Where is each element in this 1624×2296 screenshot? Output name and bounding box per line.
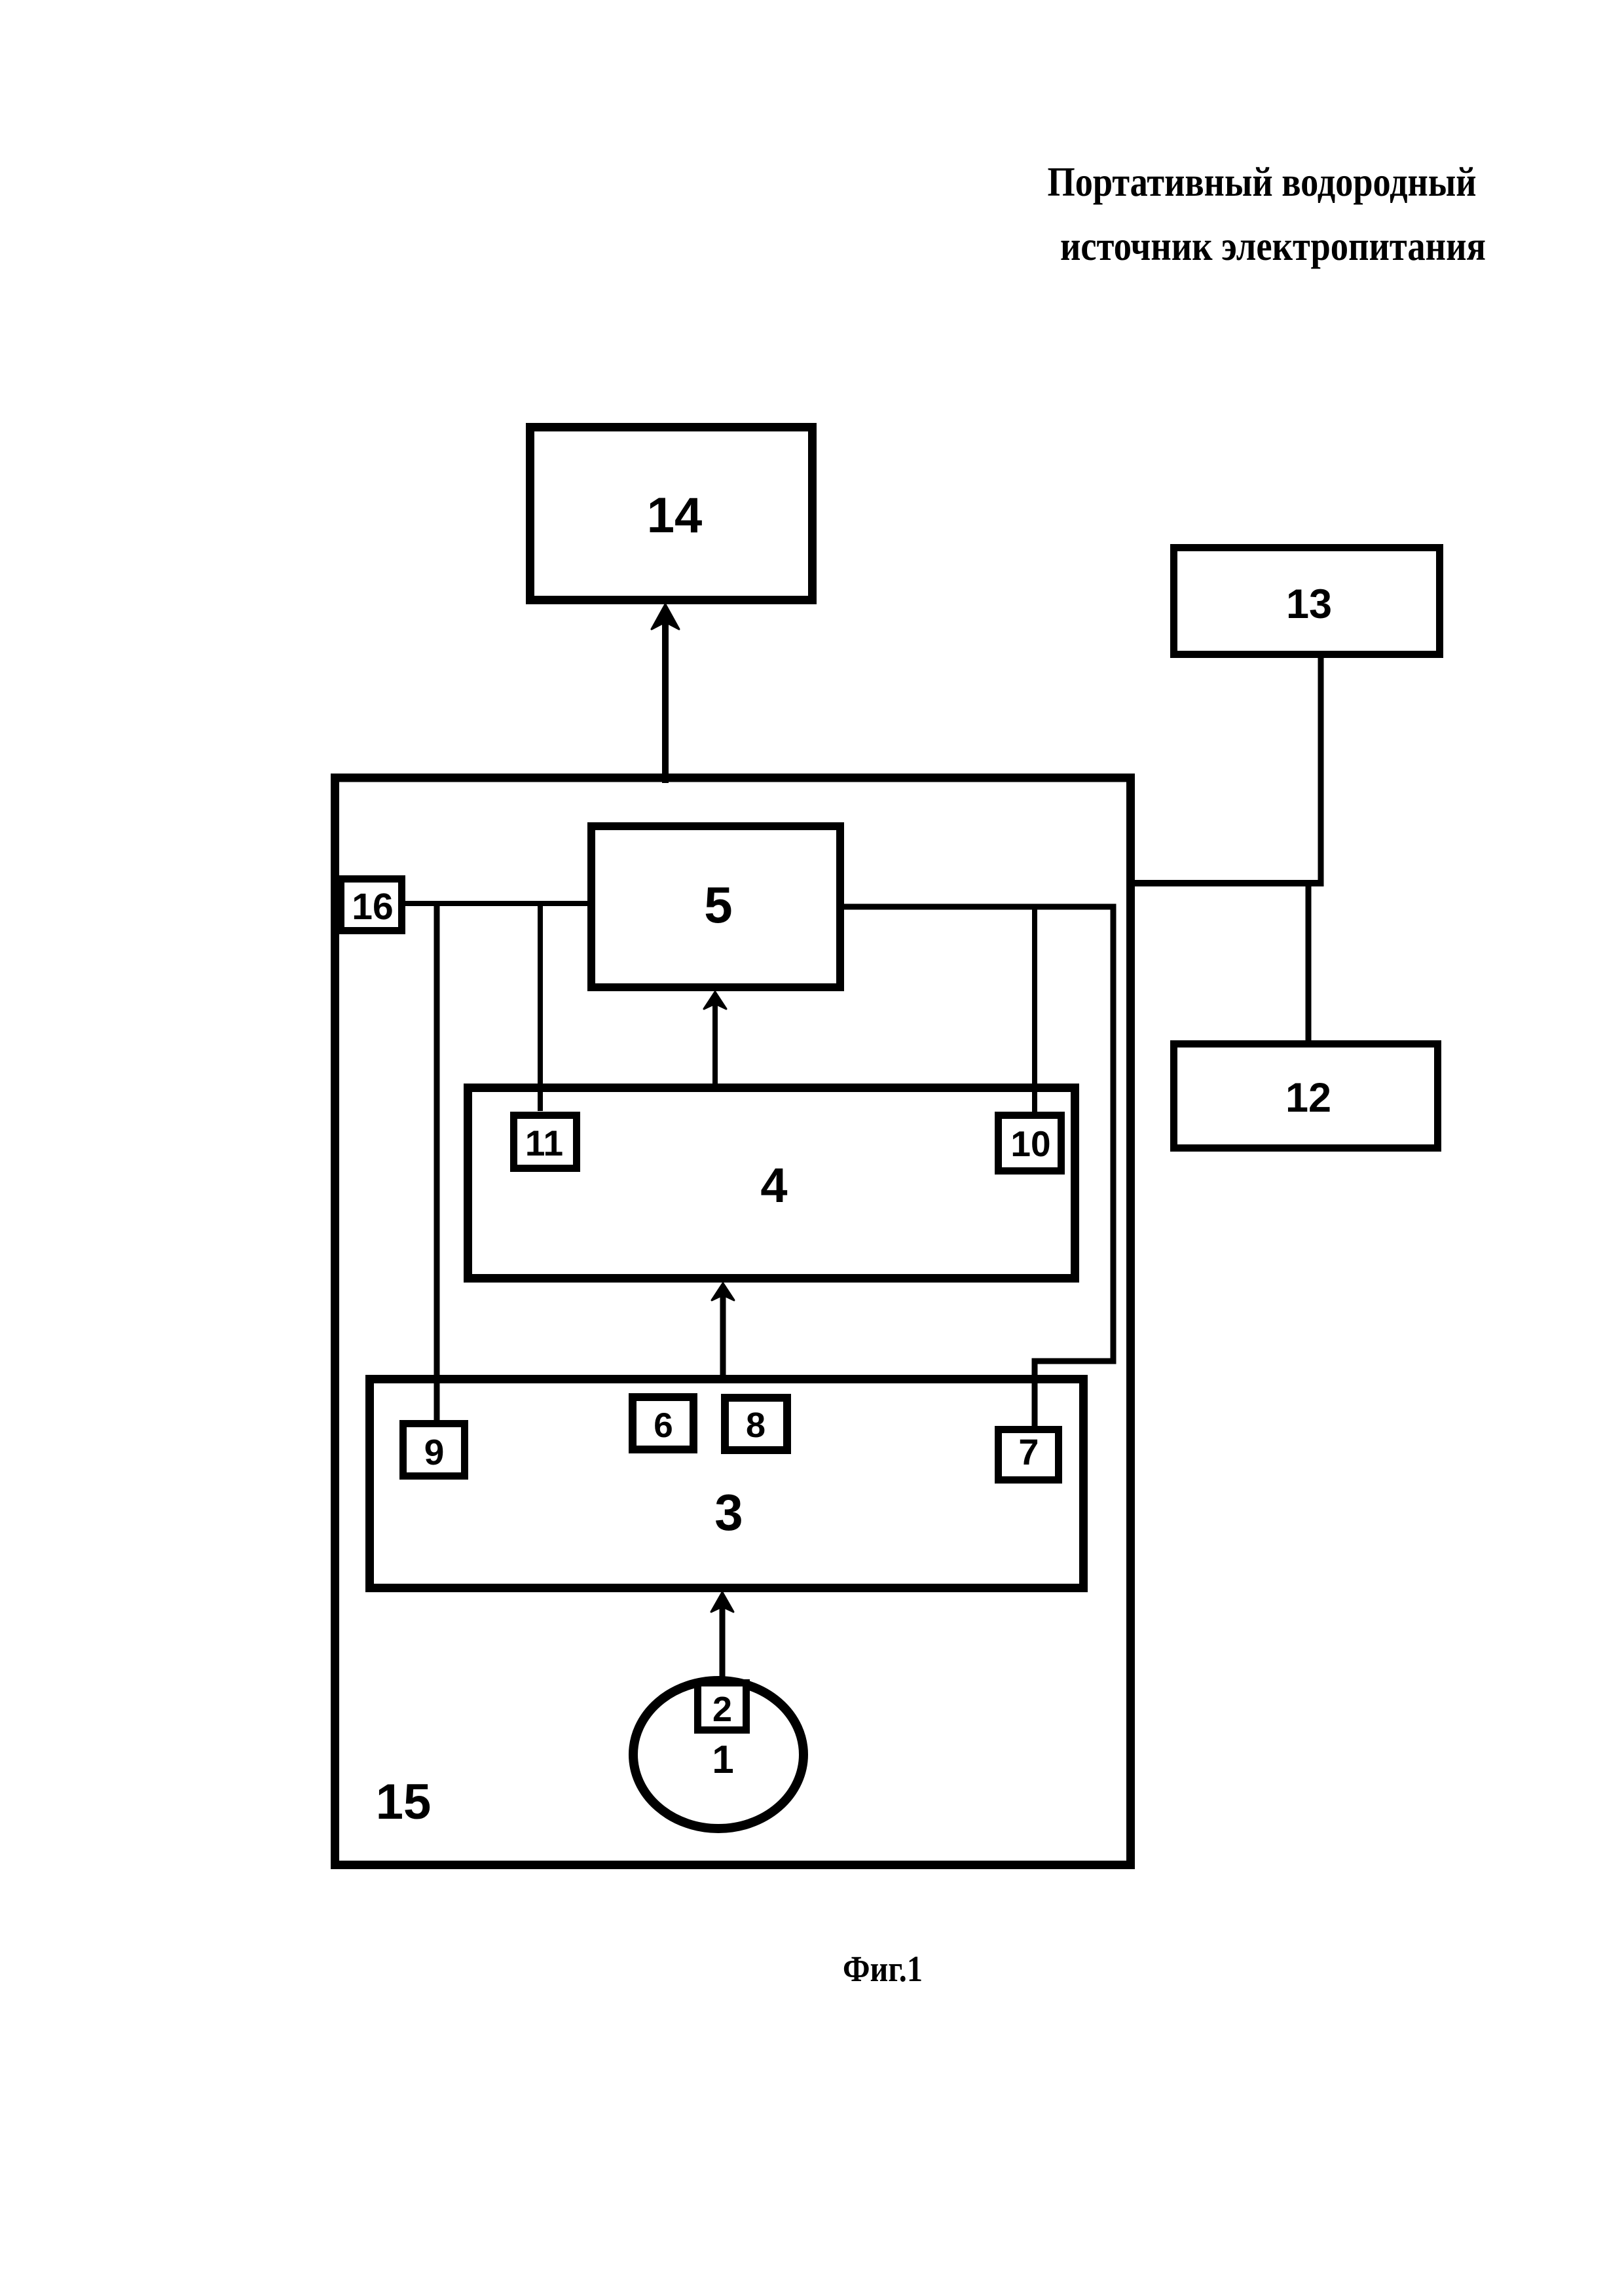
svg-text:11: 11 — [525, 1123, 563, 1163]
svg-text:7: 7 — [1018, 1431, 1039, 1472]
svg-text:9: 9 — [424, 1432, 445, 1472]
svg-text:Фиг.1: Фиг.1 — [843, 1949, 923, 1990]
svg-text:3: 3 — [714, 1484, 743, 1541]
svg-text:16: 16 — [352, 886, 393, 928]
svg-text:15: 15 — [376, 1774, 432, 1830]
svg-text:источник электропитания: источник электропитания — [1060, 223, 1486, 269]
svg-text:13: 13 — [1286, 581, 1332, 627]
svg-text:8: 8 — [746, 1406, 766, 1445]
svg-text:4: 4 — [760, 1158, 787, 1212]
svg-text:14: 14 — [647, 488, 703, 543]
svg-text:Портативный водородный: Портативный водородный — [1048, 158, 1477, 205]
svg-text:5: 5 — [704, 876, 732, 934]
svg-text:6: 6 — [654, 1406, 673, 1445]
svg-text:2: 2 — [712, 1690, 732, 1729]
svg-text:1: 1 — [712, 1738, 733, 1781]
svg-text:12: 12 — [1285, 1075, 1331, 1121]
svg-text:10: 10 — [1010, 1123, 1050, 1164]
